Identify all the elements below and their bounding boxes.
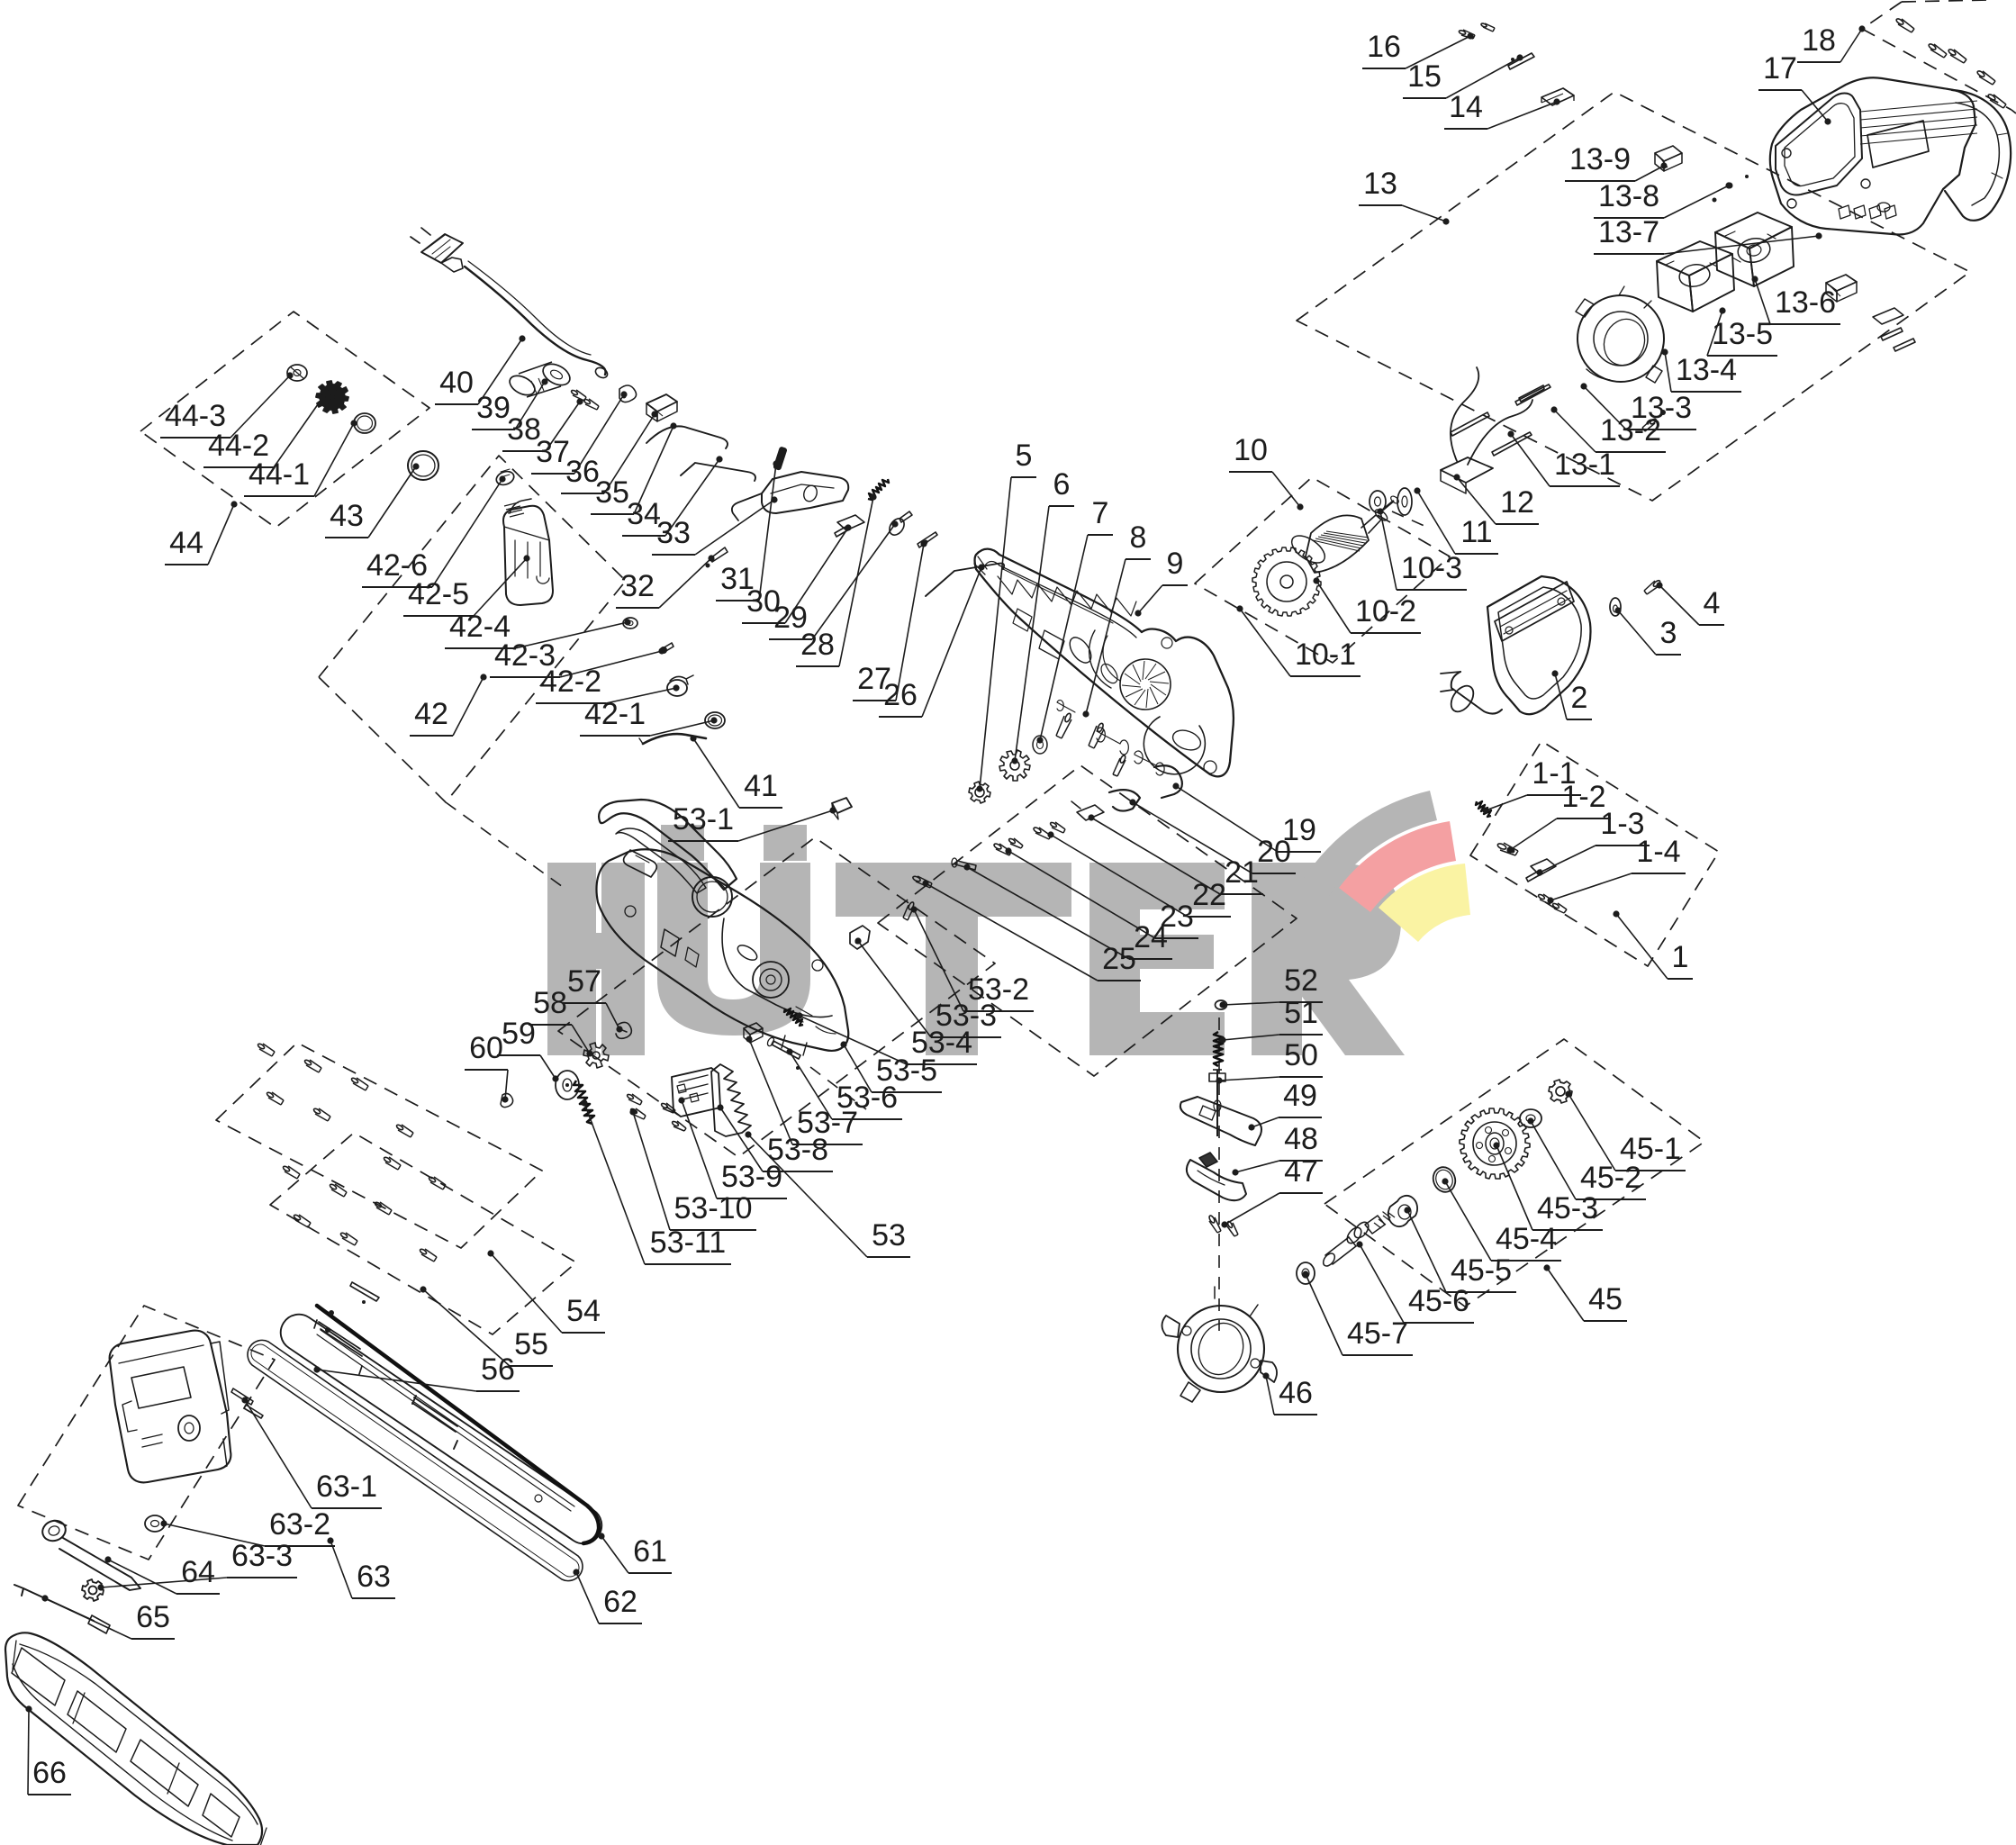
svg-text:13-8: 13-8 (1598, 179, 1659, 213)
svg-text:15: 15 (1407, 59, 1442, 94)
svg-text:7: 7 (1092, 496, 1109, 530)
svg-text:8: 8 (1130, 520, 1147, 555)
svg-text:26: 26 (883, 678, 918, 712)
svg-text:45-7: 45-7 (1347, 1316, 1408, 1351)
svg-text:45-6: 45-6 (1408, 1284, 1469, 1318)
svg-text:53-11: 53-11 (650, 1225, 726, 1260)
svg-text:13-7: 13-7 (1598, 215, 1659, 249)
svg-text:32: 32 (620, 569, 655, 603)
svg-text:14: 14 (1449, 90, 1483, 124)
svg-text:49: 49 (1283, 1079, 1317, 1113)
svg-text:42-5: 42-5 (408, 577, 469, 611)
svg-text:1-4: 1-4 (1636, 835, 1680, 869)
svg-text:56: 56 (481, 1352, 515, 1387)
svg-text:45-2: 45-2 (1580, 1161, 1641, 1195)
svg-text:42: 42 (414, 697, 448, 731)
svg-text:53-9: 53-9 (721, 1160, 782, 1194)
svg-text:66: 66 (32, 1756, 67, 1790)
svg-text:44: 44 (169, 526, 203, 560)
svg-text:3: 3 (1660, 616, 1677, 650)
svg-text:2: 2 (1571, 681, 1588, 715)
svg-text:18: 18 (1802, 23, 1836, 58)
svg-text:20: 20 (1257, 835, 1291, 869)
svg-text:46: 46 (1279, 1376, 1313, 1410)
svg-text:13-4: 13-4 (1676, 353, 1737, 387)
svg-text:33: 33 (656, 516, 691, 550)
svg-text:42-2: 42-2 (540, 665, 601, 699)
svg-text:63-2: 63-2 (269, 1507, 330, 1542)
svg-text:45-5: 45-5 (1451, 1253, 1512, 1288)
svg-text:28: 28 (800, 628, 835, 662)
svg-text:10-2: 10-2 (1355, 594, 1416, 629)
svg-text:43: 43 (330, 499, 364, 533)
svg-text:1-2: 1-2 (1561, 780, 1605, 814)
svg-text:35: 35 (595, 475, 629, 510)
svg-text:65: 65 (136, 1600, 170, 1634)
svg-text:13-6: 13-6 (1775, 285, 1836, 320)
svg-text:21: 21 (1225, 855, 1259, 890)
svg-text:45: 45 (1588, 1282, 1623, 1316)
svg-text:11: 11 (1460, 515, 1492, 549)
svg-text:52: 52 (1284, 963, 1318, 998)
svg-text:63: 63 (357, 1560, 391, 1594)
svg-text:13-9: 13-9 (1569, 142, 1631, 176)
svg-text:61: 61 (633, 1534, 667, 1569)
svg-text:59: 59 (502, 1017, 536, 1051)
svg-text:40: 40 (439, 366, 474, 400)
svg-text:4: 4 (1704, 586, 1721, 620)
svg-text:13-5: 13-5 (1712, 317, 1773, 351)
svg-text:48: 48 (1284, 1122, 1318, 1156)
svg-text:57: 57 (567, 964, 601, 999)
svg-text:13: 13 (1363, 167, 1397, 201)
svg-text:16: 16 (1367, 30, 1401, 64)
svg-text:53-1: 53-1 (673, 802, 734, 837)
svg-text:51: 51 (1284, 996, 1318, 1030)
svg-text:6: 6 (1053, 467, 1071, 502)
svg-text:53-10: 53-10 (674, 1191, 753, 1225)
svg-text:1: 1 (1672, 940, 1689, 974)
svg-text:39: 39 (476, 391, 511, 425)
svg-text:17: 17 (1763, 51, 1797, 86)
svg-text:22: 22 (1192, 878, 1226, 912)
svg-text:41: 41 (744, 769, 778, 803)
svg-text:12: 12 (1500, 485, 1534, 520)
svg-text:47: 47 (1284, 1154, 1318, 1189)
svg-text:13-2: 13-2 (1600, 413, 1661, 448)
svg-text:55: 55 (514, 1327, 548, 1361)
svg-text:64: 64 (181, 1555, 215, 1589)
svg-text:25: 25 (1102, 942, 1136, 976)
svg-text:5: 5 (1016, 439, 1033, 473)
svg-text:63-1: 63-1 (316, 1470, 377, 1504)
svg-text:60: 60 (469, 1031, 503, 1065)
svg-text:13-1: 13-1 (1554, 448, 1615, 482)
svg-text:10-3: 10-3 (1401, 551, 1462, 585)
svg-text:53: 53 (872, 1218, 906, 1253)
svg-text:42-1: 42-1 (584, 697, 646, 731)
svg-text:54: 54 (566, 1294, 601, 1328)
svg-text:10: 10 (1234, 433, 1268, 467)
svg-text:58: 58 (533, 986, 567, 1020)
svg-text:50: 50 (1284, 1038, 1318, 1072)
svg-text:63-3: 63-3 (231, 1539, 293, 1573)
svg-text:45-4: 45-4 (1496, 1222, 1557, 1256)
svg-text:9: 9 (1167, 547, 1184, 581)
svg-text:24: 24 (1134, 920, 1168, 954)
svg-text:44-1: 44-1 (249, 457, 310, 492)
svg-text:45-3: 45-3 (1537, 1191, 1598, 1225)
svg-text:62: 62 (603, 1585, 637, 1619)
svg-text:10-1: 10-1 (1295, 638, 1356, 672)
